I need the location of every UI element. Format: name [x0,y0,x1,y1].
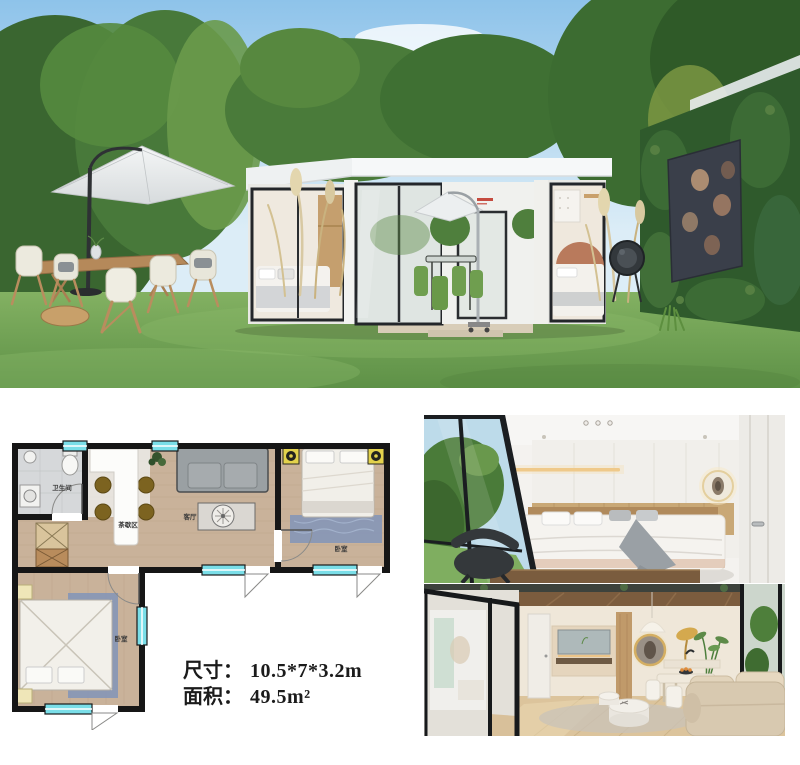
room-label-bedroom-left: 卧室 [115,634,129,643]
house-module-bedroom-left [248,184,348,324]
round-mirror [699,467,737,505]
bench-table [490,570,700,583]
pillow [557,268,577,277]
door-handle [752,522,764,526]
area-row: 面积：49.5m² [183,684,362,710]
chair [138,504,154,520]
led-strip-light [510,468,620,472]
armrest [683,693,701,723]
vanity-mirror [558,630,610,654]
vase [91,245,101,259]
room-label-tea-dining: 茶歇区 [117,520,138,529]
brand-mark [477,203,487,205]
living-dining-photo [424,584,785,736]
green-chair [414,266,428,296]
roof [352,158,612,176]
brand-mark [477,198,493,201]
pillow [278,269,294,279]
chair [138,477,154,493]
pillow [609,510,631,521]
shelf [584,194,600,198]
photo-collage-poster [668,140,742,282]
vanity-niche [552,626,616,676]
dimensions-label: 尺寸： [183,660,243,682]
pillow [58,667,84,683]
pillow [542,512,570,525]
umbrella-base [70,288,102,296]
room-label-bedroom-right: 卧室 [335,544,349,553]
dimensions-value: 10.5*7*3.2m [250,660,362,682]
area-label: 面积： [183,686,243,708]
room-label-bathroom: 卫生间 [52,483,72,492]
chair [95,477,111,493]
dimensions-row: 尺寸：10.5*7*3.2m [183,658,362,684]
storage-cabinets [36,523,68,567]
green-chair [432,276,448,310]
wood-column [616,612,632,700]
page: 卫生间 茶歇区 客厅 卧室 卧室 [0,0,800,765]
pillow [574,512,602,525]
pillow [26,667,52,683]
area-value: 49.5m² [250,686,311,708]
deck-floor [490,714,517,736]
pillow [306,451,334,463]
pillow [636,510,658,521]
dining-chair [666,686,682,708]
chair [95,504,111,520]
pegboard [554,190,580,222]
sink [24,451,36,463]
pillow [259,269,275,279]
ground-mound [41,306,89,326]
through-glass-greenery [370,215,430,255]
left-glass-wall [424,590,519,736]
bedroom-left-furniture [15,585,118,703]
bedroom-photo [424,415,785,583]
green-chair [470,270,483,298]
room-label-living: 客厅 [183,512,198,521]
sofa [683,672,785,736]
dining-chair [646,680,660,700]
deck-step [428,330,503,337]
pillow [340,451,368,463]
house-module-bedroom-right [548,180,606,324]
round-decor-mirror [632,632,668,668]
wardrobe [739,415,785,583]
green-chair [452,266,466,296]
toilet [62,455,78,475]
specs-block: 尺寸：10.5*7*3.2m 面积：49.5m² [183,658,362,710]
vanity-counter [556,658,612,664]
exterior-photo [0,0,800,388]
